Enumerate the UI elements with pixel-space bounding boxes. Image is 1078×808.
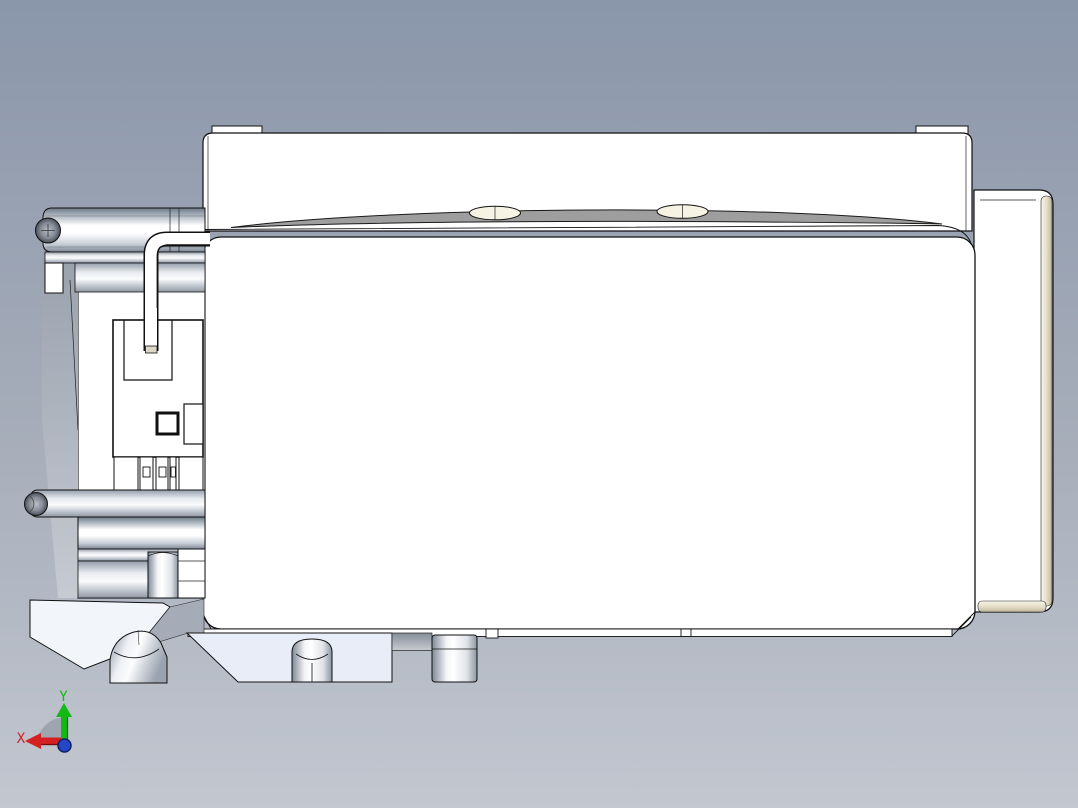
axis-x-label: X: [17, 731, 26, 747]
coupling-block: [178, 549, 205, 598]
counterbore-hole-left: [470, 206, 521, 220]
strip-notch-2: [681, 629, 691, 637]
connector-square-hole: [157, 413, 178, 434]
motor-side-shadow: [42, 253, 78, 598]
side-bracket: [45, 263, 63, 293]
connector-side-tab: [184, 404, 203, 444]
tube-tip: [146, 346, 158, 353]
shaft-band-2: [45, 252, 205, 263]
shaft-band-3: [75, 263, 205, 292]
strip-notch-1: [486, 629, 498, 638]
coupling-cylinder: [148, 552, 178, 598]
counterbore-hole-right: [657, 205, 708, 219]
cad-canvas[interactable]: X Y: [0, 0, 1078, 808]
cad-viewport[interactable]: X Y: [0, 0, 1078, 808]
lead-screw-cylinder: [78, 517, 205, 549]
axis-origin-dot: [58, 739, 71, 752]
axis-triad: X Y: [17, 689, 72, 752]
cad-model: [25, 126, 1054, 683]
base-plate: [187, 633, 392, 682]
end-plate-edge-bottom: [978, 601, 1046, 612]
axis-y-label: Y: [59, 689, 68, 705]
axis-x-arrowhead: [25, 733, 41, 749]
motor-assembly: [25, 208, 211, 683]
shaft-band-low: [30, 490, 205, 517]
base-cylinder-flat: [432, 635, 477, 682]
end-plate-edge-right: [1041, 196, 1052, 606]
lower-band-2: [78, 561, 148, 598]
slide-table: [203, 237, 975, 629]
base-shadow-block: [392, 633, 432, 651]
axis-y-arrowhead: [56, 703, 72, 717]
screw-head-low: [25, 493, 48, 516]
